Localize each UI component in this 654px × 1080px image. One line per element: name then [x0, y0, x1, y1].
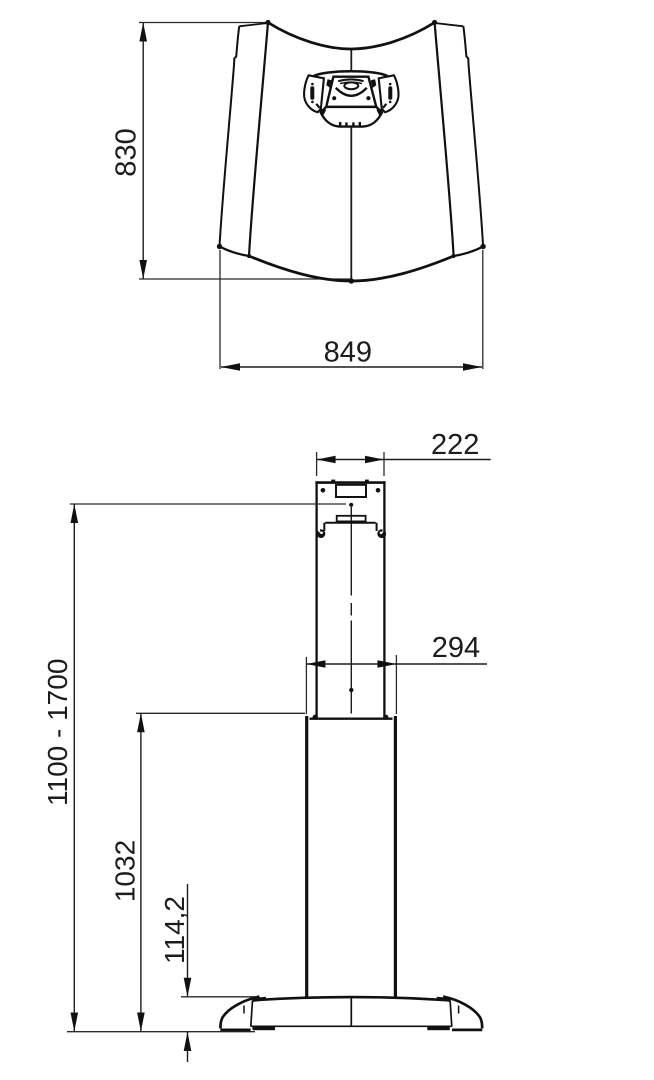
- svg-text:1100 - 1700: 1100 - 1700: [42, 659, 73, 806]
- svg-text:114,2: 114,2: [159, 896, 190, 964]
- svg-text:1032: 1032: [110, 840, 141, 902]
- svg-text:830: 830: [111, 128, 143, 176]
- svg-text:294: 294: [432, 632, 480, 664]
- svg-text:849: 849: [324, 336, 372, 368]
- svg-text:222: 222: [431, 429, 479, 461]
